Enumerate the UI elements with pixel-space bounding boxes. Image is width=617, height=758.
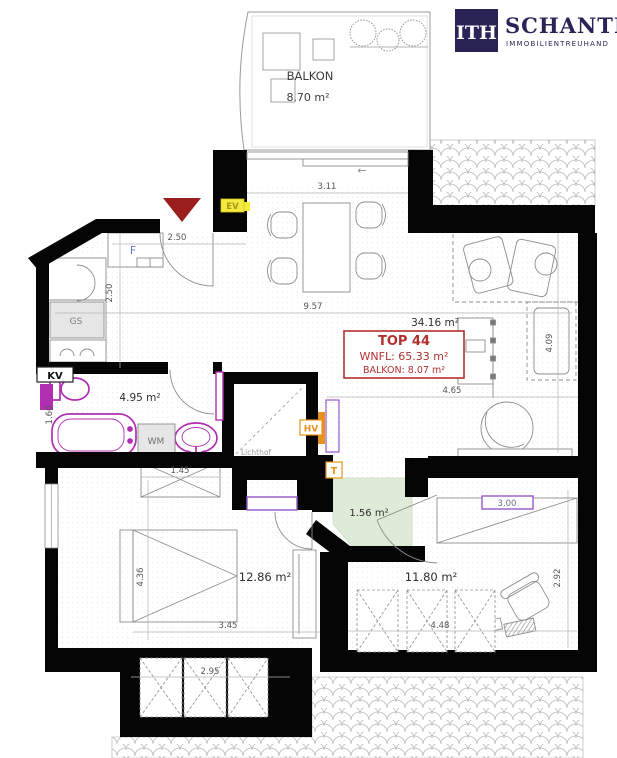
lightwell-label: Lichthof [241,448,271,457]
unit-living-area: WNFL: 65.33 m² [360,350,449,363]
kv-label: KV [47,371,63,382]
logo-tagline: IMMOBILIENTREUHAND [506,40,609,48]
dimension-label: 3.00 [498,499,517,509]
dimension-label: 4.65 [443,386,462,396]
wall [213,150,247,232]
dimension-label: 9.57 [304,302,323,312]
t-label: T [331,466,338,477]
wall [330,650,597,672]
balcony-area: 8.70 m² [286,91,329,104]
wall [428,205,595,233]
bathroom-door-panel [216,372,223,420]
stove-icon [50,340,106,362]
dining-table [303,203,350,292]
wall [405,458,428,497]
wall [338,546,425,562]
dormer-window [455,590,495,652]
unit-balcony-area: BALKON: 8.07 m² [363,365,445,376]
dimension-label: 2.95 [201,667,220,677]
dimension-label: 2.50 [105,284,115,303]
unit-info-box: TOP 44 WNFL: 65.33 m² BALKON: 8.07 m² [344,331,464,378]
company-logo: ITH SCHANTL IMMOBILIENTREUHAND [455,9,617,52]
wall [36,260,49,374]
ev-label: EV [226,202,239,212]
dormer-window [228,658,268,717]
living-area-label: 34.16 m² [411,317,459,329]
hallway-area-label: 1.56 m² [349,508,388,519]
f-label: F [130,244,136,257]
dimension-label: 3.45 [219,621,238,631]
wall [312,480,333,512]
logo-company-name: SCHANTL [505,13,617,38]
wall [578,480,597,672]
dimension-label: 4.36 [136,568,146,587]
dimension-label: 4.09 [545,334,555,353]
dormer-window [140,658,182,717]
unit-title: TOP 44 [378,334,430,349]
bathtub-icon [52,414,136,456]
balcony-furniture [263,33,300,70]
wall [36,452,232,468]
dimension-label: 3.11 [318,182,337,192]
dimension-label: 4.48 [431,621,450,631]
sideboard [458,449,572,457]
bathroom-area-label: 4.95 m² [119,392,160,404]
wall [428,456,578,478]
t-badge: T [326,462,342,478]
bedroom1-area-label: 12.86 m² [239,570,291,584]
gs-label: GS [70,317,83,327]
logo-monogram: ITH [456,22,497,44]
wm-label: WM [148,437,165,447]
dimension-label: 1.45 [171,466,190,476]
hv-label: HV [304,425,319,435]
dormer-window [357,590,398,652]
balcony-label: BALKON [287,69,334,83]
dimension-label: 2.50 [168,233,187,243]
balcony-furniture [313,39,334,60]
floor-plan: BALKON 8.70 m² [0,0,617,758]
dimension-label: 2.92 [553,569,563,588]
light-well: Lichthof [234,384,306,457]
floor-plan-page: BALKON 8.70 m² [0,0,617,758]
roof-area-top-right [428,140,595,206]
wall [297,480,312,510]
dimension-label: 1.60 [45,406,55,425]
wall [232,480,247,510]
bedroom2-area-label: 11.80 m² [405,570,457,584]
bedroom1-window [247,497,297,510]
wall [45,648,120,672]
wall [578,233,597,480]
balcony: BALKON 8.70 m² [240,12,430,150]
wall [232,466,333,480]
kitchen-counter [48,258,106,362]
slide-direction-arrow-icon: ← [357,164,366,177]
